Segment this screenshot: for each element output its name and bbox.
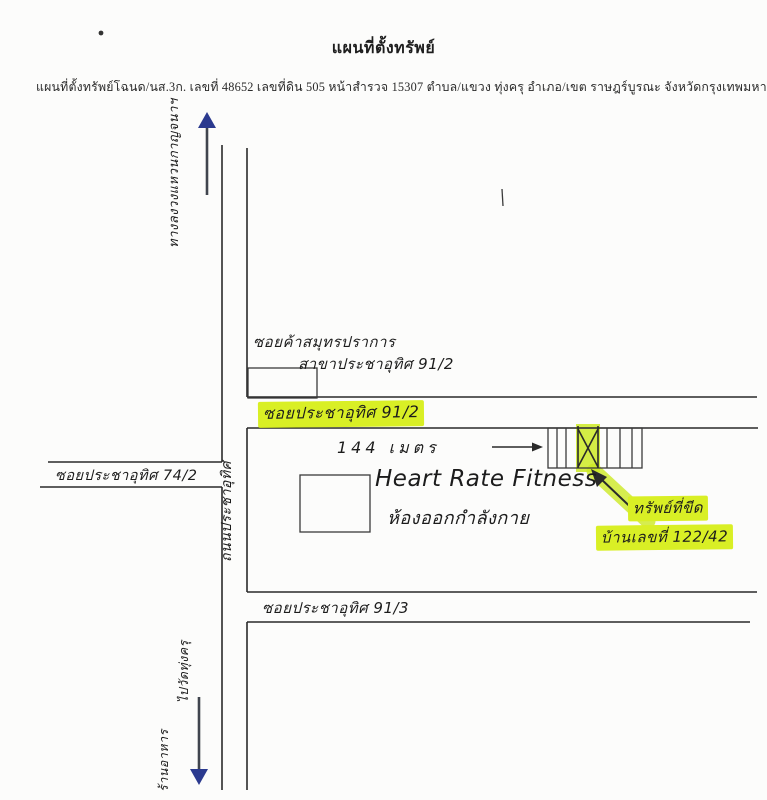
down-arrow-icon [190,697,208,785]
gym-building-box [300,475,370,532]
scan-tick [502,189,503,206]
soi-91-2-label: ซอยประชาอุทิศ 91/2 [258,400,425,428]
direction-up-label: ทางลงวงแหวนกาญจนาฯ [163,96,184,248]
shop-name-line2: สาขาประชาอุทิศ 91/2 [298,352,454,376]
up-arrow-icon [198,112,216,195]
property-description: แผนที่ตั้งทรัพย์โฉนด/นส.3ก. เลขที่ 48652… [36,78,767,97]
gym-desc-label: ห้องออกกำลังกาย [387,503,529,532]
direction-down-label: ร้านอาหาร [154,695,174,792]
house-number-note: บ้านเลขที่ 122/42 [596,524,733,550]
page-title: แผนที่ตั้งทรัพย์ [0,36,767,61]
gym-name-label: Heart Rate Fitness [375,466,597,492]
main-road-label: ถนนประชาอุทิศ [216,428,238,595]
direction-down-place-label: ไปวัดทุ่งครุ [174,606,194,703]
marked-property-note: ทรัพย์ที่ขีด [628,496,708,522]
distance-arrow-icon [492,443,543,452]
soi-74-2-label: ซอยประชาอุทิศ 74/2 [55,464,197,487]
distance-label: 144 เมตร [337,436,440,461]
soi-91-3-label: ซอยประชาอุทิศ 91/3 [262,596,409,620]
shop-name-line1: ซอยค้าสมุทรปราการ [253,330,396,354]
scan-dot [99,31,104,36]
